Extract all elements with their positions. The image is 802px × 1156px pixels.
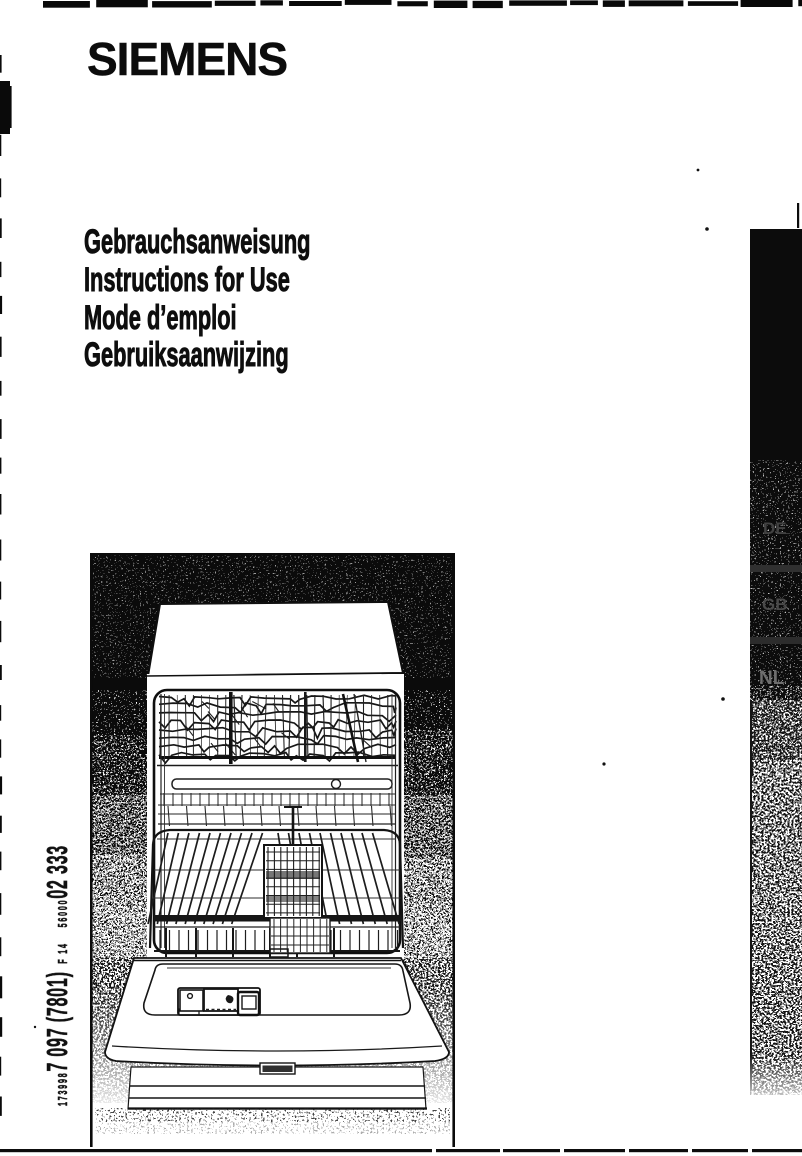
svg-text:DE: DE (763, 519, 787, 538)
svg-text:GB: GB (762, 595, 788, 614)
svg-text:NL: NL (759, 668, 785, 689)
